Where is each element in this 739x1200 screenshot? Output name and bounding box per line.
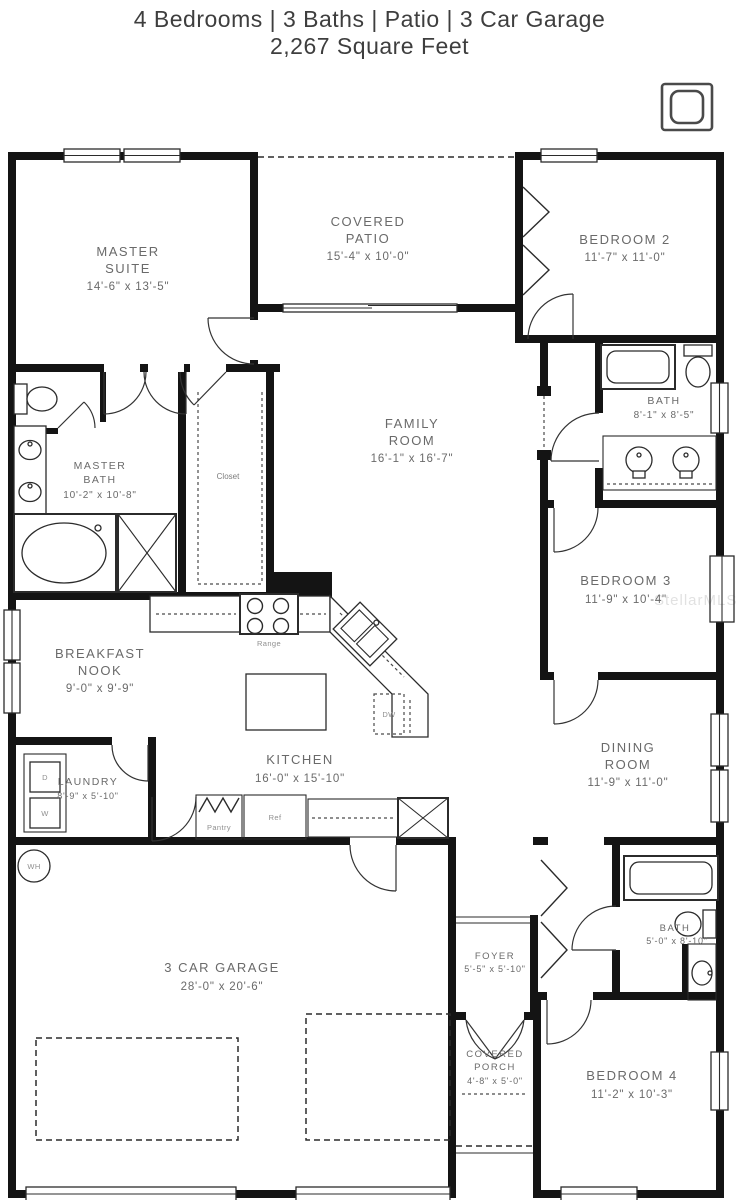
floorplan-drawing: MASTER SUITE 14'-6" x 13'-5" COVERED PAT…: [0, 0, 739, 1200]
faucet-dot: [684, 453, 688, 457]
room-dims-covered-porch: 4'-8" x 5'-0": [467, 1076, 523, 1086]
column: [537, 450, 551, 460]
tub-icon: [630, 862, 712, 894]
tub-faucet: [95, 525, 101, 531]
door-arc: [104, 372, 146, 414]
room-label-laundry: LAUNDRY: [58, 776, 119, 788]
faucet-dot: [28, 484, 32, 488]
wall-segment: [598, 500, 724, 508]
wall-segment: [540, 343, 548, 388]
room-dims-master-suite: 14'-6" x 13'-5": [87, 281, 170, 293]
pantry-box: [196, 795, 242, 839]
wall-segment: [533, 992, 541, 1198]
room-label-family-room: ROOM: [389, 433, 435, 448]
watermark: StellarMLS: [654, 592, 737, 609]
wall-segment: [598, 672, 724, 680]
room-label-dining-room: DINING: [601, 740, 656, 755]
room-label-bedroom4: BEDROOM 4: [586, 1068, 678, 1083]
room-label-master-bath: MASTER: [74, 460, 127, 472]
wall-segment: [226, 364, 280, 372]
room-label-garage: 3 CAR GARAGE: [164, 960, 280, 975]
door-arc: [208, 318, 254, 364]
toilet-tank: [684, 345, 712, 356]
plan-icon: [662, 84, 712, 130]
toilet-bowl: [686, 357, 710, 387]
toilet-bowl: [27, 387, 57, 411]
wall-segment: [148, 737, 156, 745]
room-label-family-room: FAMILY: [385, 416, 439, 431]
wall-segment: [184, 364, 190, 372]
sink-drain: [633, 471, 645, 478]
tub-icon: [22, 523, 106, 583]
faucet-dot: [708, 971, 712, 975]
faucet-dot: [637, 453, 641, 457]
room-dims-laundry: 8'-9" x 5'-10": [57, 791, 119, 801]
kitchen-fixtures: [150, 594, 448, 839]
wall-segment: [8, 837, 350, 845]
room-label-master-suite: MASTER: [96, 244, 159, 259]
wall-segment: [540, 500, 548, 680]
room-label-covered-porch: PORCH: [474, 1062, 516, 1073]
door-arc: [554, 680, 598, 724]
wall-segment: [515, 152, 523, 343]
room-dims-bath3: 5'-0" x 8'-10": [646, 936, 708, 946]
wall-segment: [448, 845, 456, 1198]
door-arc: [554, 508, 598, 552]
room-label-bath3: BATH: [660, 923, 691, 934]
room-label-master-bath: BATH: [83, 474, 116, 486]
sink-drain: [680, 471, 692, 478]
wall-segment: [266, 372, 274, 572]
dryer-label: D: [42, 773, 48, 782]
refrigerator-label: Ref: [269, 813, 282, 822]
wall-segment: [8, 364, 104, 372]
room-dims-bedroom2: 11'-7" x 11'-0": [584, 252, 665, 264]
room-label-master-suite: SUITE: [105, 261, 151, 276]
room-label-bath2: BATH: [647, 395, 680, 407]
garage-bay: [306, 1014, 450, 1140]
room-label-bedroom3: BEDROOM 3: [580, 573, 672, 588]
door-arc: [572, 906, 616, 950]
room-label-kitchen: KITCHEN: [266, 752, 334, 767]
wall-segment: [515, 335, 724, 343]
pantry-shelf-zigzag: [199, 798, 239, 812]
door-leaf: [194, 372, 226, 405]
room-dims-master-bath: 10'-2" x 10'-8": [63, 490, 137, 501]
room-label-breakfast-nook: NOOK: [78, 663, 122, 678]
room-label-dining-room: ROOM: [605, 757, 651, 772]
pantry-label: Pantry: [207, 823, 231, 832]
tub-icon: [607, 351, 669, 383]
wall-segment: [612, 950, 620, 1000]
wall-segment: [540, 672, 554, 680]
toilet-tank: [14, 384, 27, 414]
wall-segment: [682, 944, 688, 1000]
range-label: Range: [257, 639, 281, 648]
wall-segment: [533, 837, 548, 845]
room-label-covered-patio: COVERED: [331, 214, 406, 229]
room-label-foyer: FOYER: [475, 951, 515, 962]
column: [537, 386, 551, 396]
room-dims-foyer: 5'-5" x 5'-10": [464, 964, 526, 974]
door-arc: [84, 402, 95, 428]
room-dims-bath2: 8'-1" x 8'-5": [634, 410, 695, 421]
washer-label: W: [41, 809, 49, 818]
room-label-breakfast-nook: BREAKFAST: [55, 646, 145, 661]
closet-bifold-chevron: [541, 860, 567, 916]
wall-segment: [140, 364, 148, 372]
dishwasher-label: DW: [382, 710, 396, 719]
wall-segment: [250, 152, 258, 312]
wall-segment: [604, 837, 724, 845]
room-label-covered-porch: COVERED: [466, 1049, 523, 1060]
door-arc: [152, 797, 196, 841]
door-leaf: [58, 402, 84, 428]
master-bath-fixtures: [14, 384, 176, 592]
door-arc: [551, 413, 599, 461]
room-dims-dining-room: 11'-9" x 11'-0": [587, 777, 668, 789]
closet-bifold-chevron: [541, 922, 567, 978]
icon-inner-square: [671, 91, 703, 123]
door-arc: [547, 1000, 591, 1044]
wall-segment: [178, 372, 186, 600]
room-dims-bedroom4: 11'-2" x 10'-3": [591, 1089, 673, 1101]
floorplan-page: 4 Bedrooms | 3 Baths | Patio | 3 Car Gar…: [0, 0, 739, 1200]
door-arc: [528, 294, 573, 339]
range-icon: [240, 594, 298, 634]
wall-segment: [8, 737, 112, 745]
door-arc: [350, 845, 396, 891]
casement-chevron: [523, 187, 549, 237]
casement-chevron: [523, 245, 549, 295]
sink-icon: [626, 447, 652, 473]
room-label-covered-patio: PATIO: [346, 231, 391, 246]
room-dims-breakfast-nook: 9'-0" x 9'-9": [66, 683, 134, 695]
room-dims-kitchen: 16'-0" x 15'-10": [255, 773, 345, 785]
faucet-dot: [28, 442, 32, 446]
garage-bay: [36, 1038, 238, 1140]
water-heater-label: WH: [27, 862, 40, 871]
room-dims-covered-patio: 15'-4" x 10'-0": [327, 251, 410, 263]
wall-segment: [612, 845, 620, 907]
room-dims-family-room: 16'-1" x 16'-7": [371, 453, 454, 465]
sink-icon: [673, 447, 699, 473]
room-dims-garage: 28'-0" x 20'-6": [181, 981, 264, 993]
closet-label: Closet: [217, 472, 240, 481]
toilet-tank: [703, 910, 716, 938]
kitchen-island: [246, 674, 326, 730]
room-label-bedroom2: BEDROOM 2: [579, 232, 671, 247]
